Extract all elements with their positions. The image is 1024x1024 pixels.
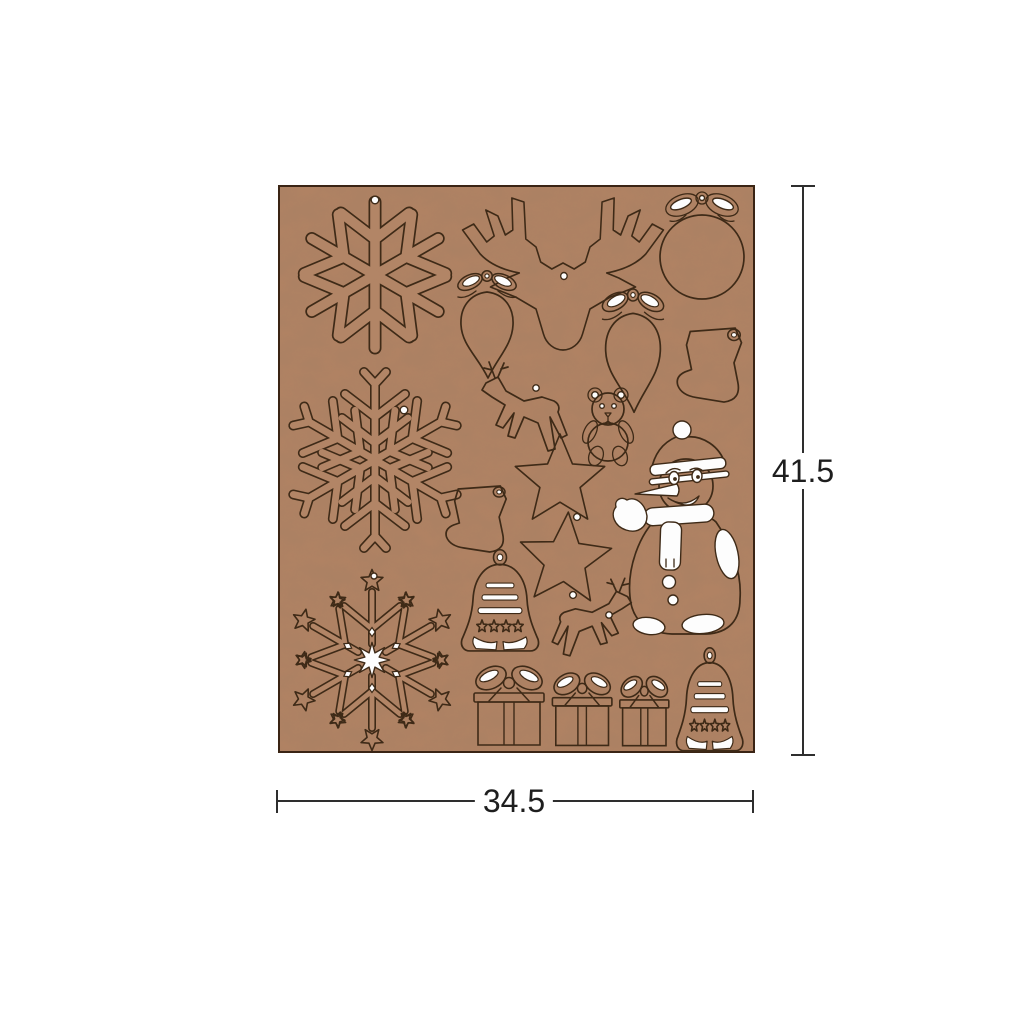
hanging-hole bbox=[606, 612, 612, 618]
width-dimension-cap-left bbox=[276, 790, 278, 813]
height-dimension-cap-top bbox=[791, 185, 815, 187]
height-dimension-label: 41.5 bbox=[764, 453, 842, 489]
hanging-hole bbox=[570, 592, 577, 599]
hanging-hole bbox=[574, 514, 581, 521]
width-dimension-label: 34.5 bbox=[475, 783, 553, 819]
height-dimension-cap-bottom bbox=[791, 754, 815, 756]
hanging-hole bbox=[400, 406, 408, 414]
hanging-hole bbox=[371, 573, 377, 579]
hanging-hole bbox=[561, 273, 568, 280]
mitten bbox=[613, 498, 647, 531]
product-dimension-diagram: 41.5 34.5 bbox=[0, 0, 1024, 1024]
hanging-hole bbox=[700, 196, 705, 201]
hanging-hole bbox=[533, 385, 539, 391]
hanging-hole bbox=[371, 196, 379, 204]
chipboard-sheet bbox=[278, 185, 755, 753]
width-dimension-cap-right bbox=[752, 790, 754, 813]
